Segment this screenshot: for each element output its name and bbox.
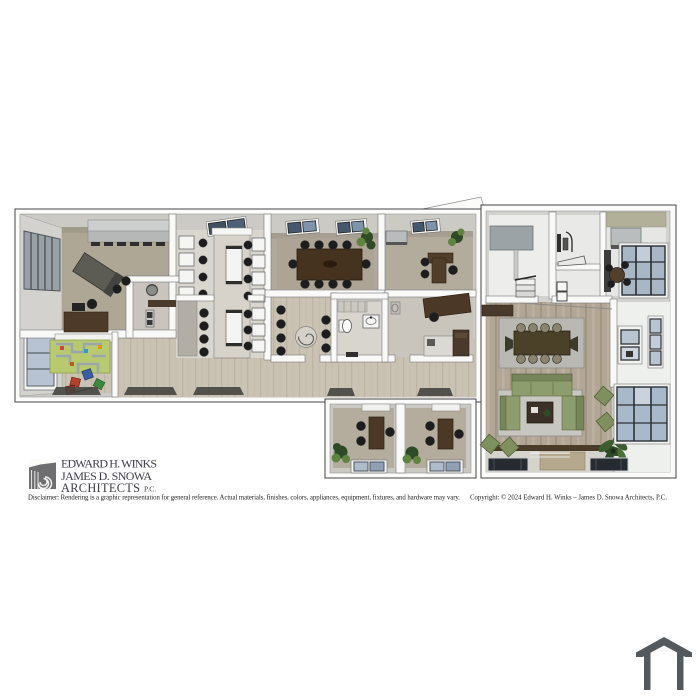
svg-text:P.C.: P.C. [144, 485, 156, 494]
svg-text:Disclaimer: Rendering is a gra: Disclaimer: Rendering is a graphic repre… [28, 495, 460, 502]
svg-text:Copyright: © 2024 Edward H. Wi: Copyright: © 2024 Edward H. Winks – Jame… [470, 495, 667, 502]
svg-text:ARCHITECTS: ARCHITECTS [61, 481, 140, 495]
